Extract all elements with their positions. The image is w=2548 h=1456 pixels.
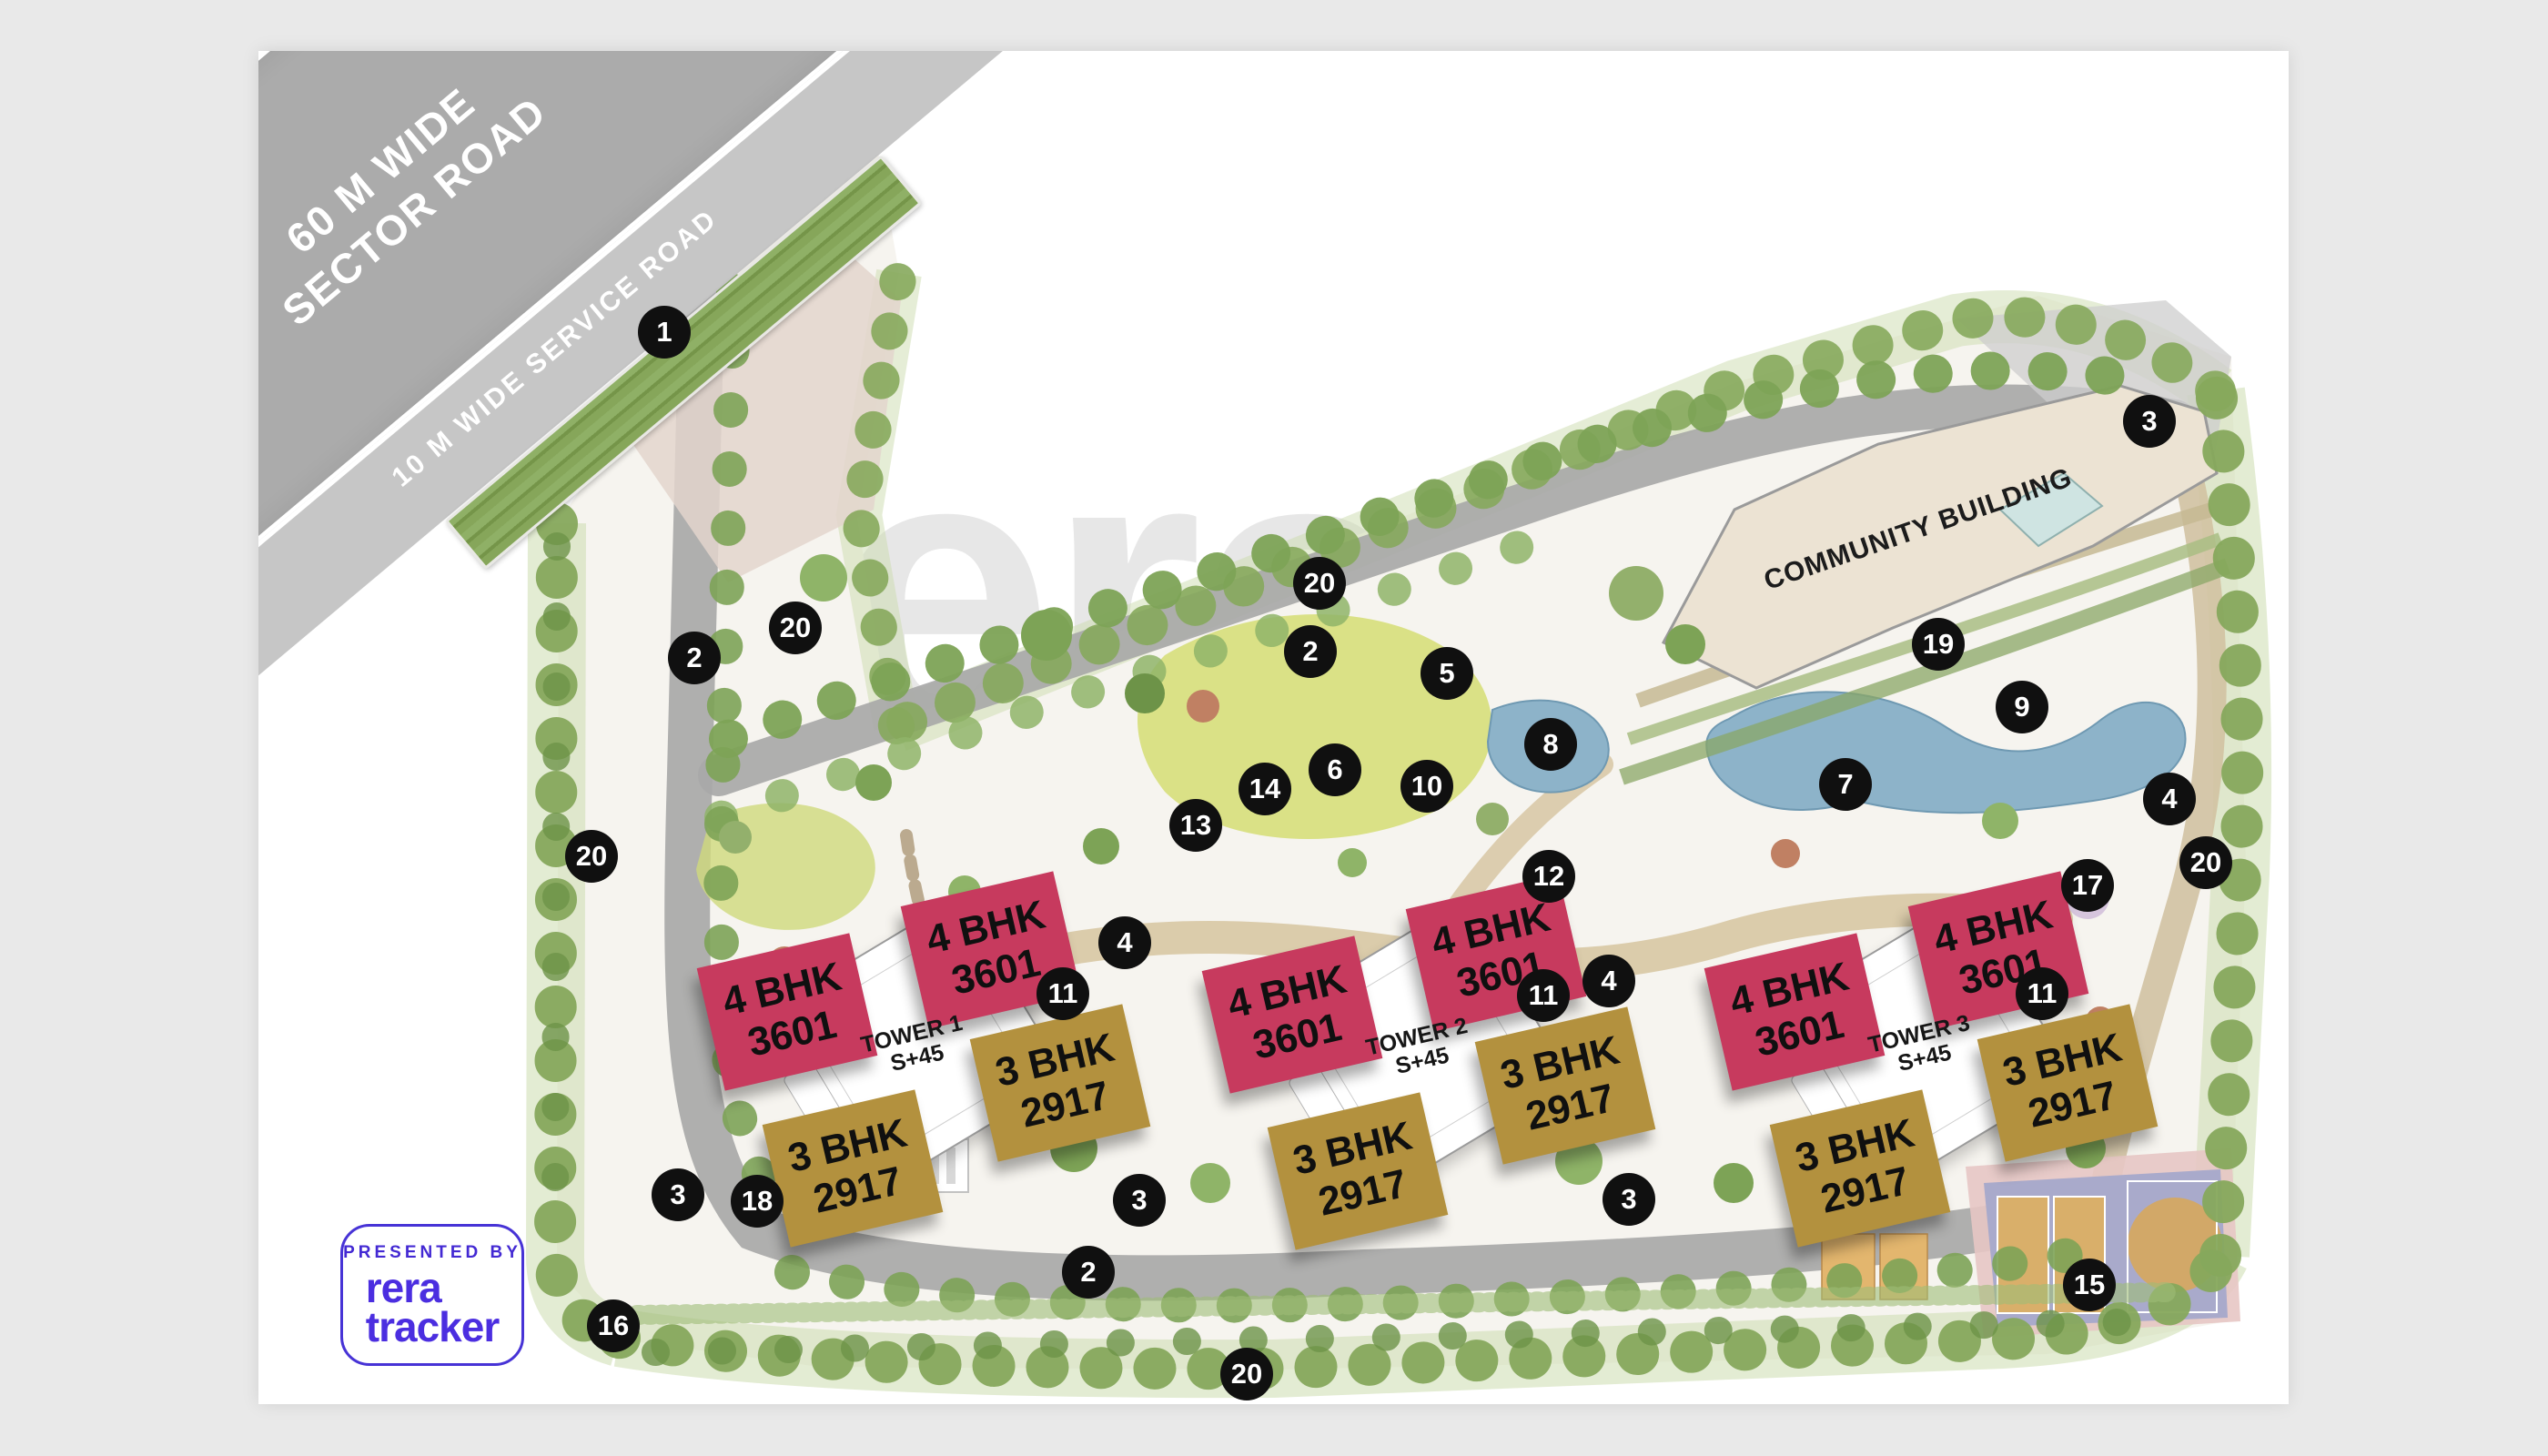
plan-marker-20: 20	[1220, 1348, 1273, 1400]
plan-marker-5: 5	[1421, 647, 1473, 700]
rera-tracker-logo[interactable]: PRESENTED BY reratracker	[340, 1224, 524, 1366]
plan-marker-20: 20	[2179, 836, 2232, 889]
site-plan: rera tracker	[258, 51, 2289, 1404]
plan-marker-1: 1	[638, 306, 691, 359]
presented-by-label: PRESENTED BY	[343, 1243, 521, 1263]
plan-marker-3: 3	[652, 1168, 704, 1221]
plan-marker-16: 16	[587, 1299, 640, 1352]
plan-marker-11: 11	[1036, 967, 1089, 1020]
plan-marker-10: 10	[1400, 760, 1453, 813]
plan-marker-2: 2	[1284, 625, 1337, 678]
page-background: rera tracker	[0, 0, 2548, 1456]
plan-marker-4: 4	[2143, 773, 2196, 825]
plan-marker-3: 3	[1603, 1173, 1655, 1226]
plan-marker-19: 19	[1912, 618, 1965, 671]
site-plan-sheet: rera tracker	[258, 51, 2289, 1404]
plan-marker-20: 20	[1293, 557, 1346, 610]
plan-marker-15: 15	[2063, 1259, 2116, 1311]
plan-marker-13: 13	[1169, 799, 1222, 852]
plan-marker-7: 7	[1819, 758, 1872, 811]
plan-marker-2: 2	[668, 632, 721, 684]
plan-marker-3: 3	[1113, 1174, 1166, 1227]
plan-marker-20: 20	[769, 602, 822, 654]
plan-marker-4: 4	[1098, 916, 1151, 969]
plan-marker-8: 8	[1524, 718, 1577, 771]
plan-marker-6: 6	[1309, 743, 1361, 796]
plan-marker-4: 4	[1582, 955, 1635, 1007]
brand-wordmark: reratracker	[366, 1269, 499, 1347]
plan-marker-2: 2	[1062, 1246, 1115, 1299]
plan-marker-11: 11	[2016, 967, 2068, 1020]
plan-marker-9: 9	[1996, 681, 2048, 733]
plan-marker-12: 12	[1522, 850, 1575, 903]
plan-marker-18: 18	[731, 1175, 784, 1228]
plan-marker-20: 20	[565, 830, 618, 883]
plan-marker-14: 14	[1239, 763, 1291, 815]
plan-marker-17: 17	[2061, 859, 2114, 912]
plan-marker-3: 3	[2123, 395, 2176, 448]
plan-marker-11: 11	[1517, 969, 1570, 1022]
